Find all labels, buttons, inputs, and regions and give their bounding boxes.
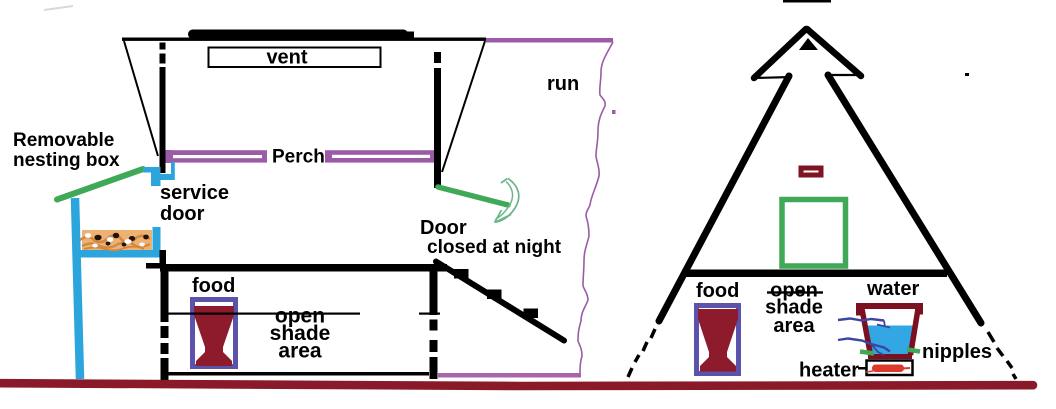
svg-text:nipples: nipples [922,341,992,363]
svg-text:Removable: Removable [13,130,114,151]
svg-text:Door: Door [420,217,467,239]
svg-text:door: door [160,203,205,225]
svg-text:area: area [773,315,815,337]
svg-text:food: food [192,275,235,297]
svg-text:closed at night: closed at night [427,237,562,258]
svg-text:area: area [278,340,322,363]
svg-text:Perch: Perch [272,147,325,168]
svg-text:vent: vent [266,47,307,69]
svg-text:food: food [696,280,739,302]
svg-text:run: run [547,73,579,95]
svg-text:nesting box: nesting box [13,150,120,171]
svg-text:water: water [866,278,919,300]
svg-text:service: service [160,182,229,204]
svg-text:heater: heater [799,360,859,382]
